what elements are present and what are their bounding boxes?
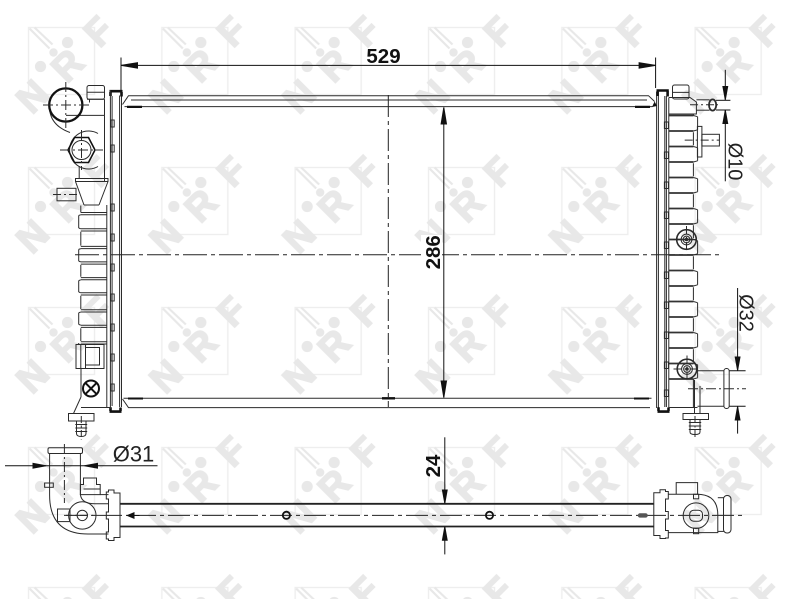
svg-text:529: 529 [366,45,400,68]
svg-text:Ø10: Ø10 [724,143,746,181]
svg-text:24: 24 [422,454,445,477]
svg-text:286: 286 [422,235,445,269]
svg-text:Ø32: Ø32 [735,294,757,332]
svg-text:Ø31: Ø31 [113,442,155,467]
